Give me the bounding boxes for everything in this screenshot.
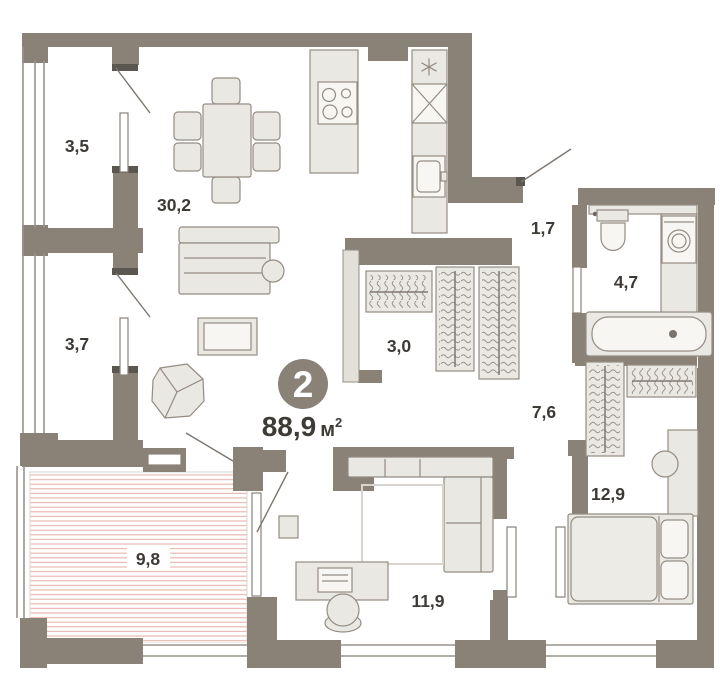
terrace-door-swing xyxy=(186,433,233,461)
label-living-kitchen: 30,2 xyxy=(157,195,191,215)
bathtub-icon xyxy=(586,312,712,356)
armchair-icon xyxy=(152,364,204,418)
entry-door-swing xyxy=(521,149,571,182)
bathroom-fixtures xyxy=(586,205,712,356)
office-door-leaf xyxy=(507,527,516,597)
rug-icon xyxy=(362,485,443,564)
flat-number: 2 xyxy=(293,364,314,405)
stool-icon xyxy=(652,451,678,477)
balcony2-door-swing xyxy=(116,273,150,317)
bathroom-door-leaf xyxy=(573,267,581,313)
sofa-icon xyxy=(179,227,284,294)
label-loggia-mid: 3,7 xyxy=(65,334,89,354)
label-bathroom: 4,7 xyxy=(614,272,638,292)
kitchen-partition xyxy=(343,250,359,382)
label-bedroom: 12,9 xyxy=(591,484,625,504)
kitchen-counter xyxy=(412,50,447,233)
bedroom-door-leaf xyxy=(556,527,565,597)
side-table-icon xyxy=(279,516,298,538)
office-furniture xyxy=(279,457,493,632)
label-loggia-top: 3,5 xyxy=(65,136,90,156)
balcony-door-swing xyxy=(116,68,150,113)
label-corridor: 7,6 xyxy=(532,402,557,422)
area-badge: 2 88,9м2 xyxy=(262,359,343,442)
bed-icon xyxy=(568,514,693,604)
total-area: 88,9м2 xyxy=(262,411,343,442)
office-chair-icon xyxy=(325,594,361,632)
floor-plan-svg: 3,5 30,2 3,7 1,7 4,7 3,0 7,6 9,8 12,9 11… xyxy=(0,0,727,682)
toilet-icon xyxy=(593,210,628,250)
shaft-x-icon xyxy=(412,84,447,123)
label-wardrobe: 3,0 xyxy=(387,336,412,356)
sink-icon xyxy=(413,156,447,197)
label-terrace: 9,8 xyxy=(136,549,161,569)
coffee-table-icon xyxy=(198,318,257,355)
label-entry-hall: 1,7 xyxy=(531,218,555,238)
floor-plan: 3,5 30,2 3,7 1,7 4,7 3,0 7,6 9,8 12,9 11… xyxy=(0,0,727,682)
wardrobe-hangers-icon xyxy=(366,267,519,379)
corner-sofa-icon xyxy=(348,457,493,572)
dining-table-icon xyxy=(174,78,280,203)
stove-icon xyxy=(310,50,358,173)
label-office: 11,9 xyxy=(411,591,444,611)
washing-machine-icon xyxy=(661,214,697,313)
